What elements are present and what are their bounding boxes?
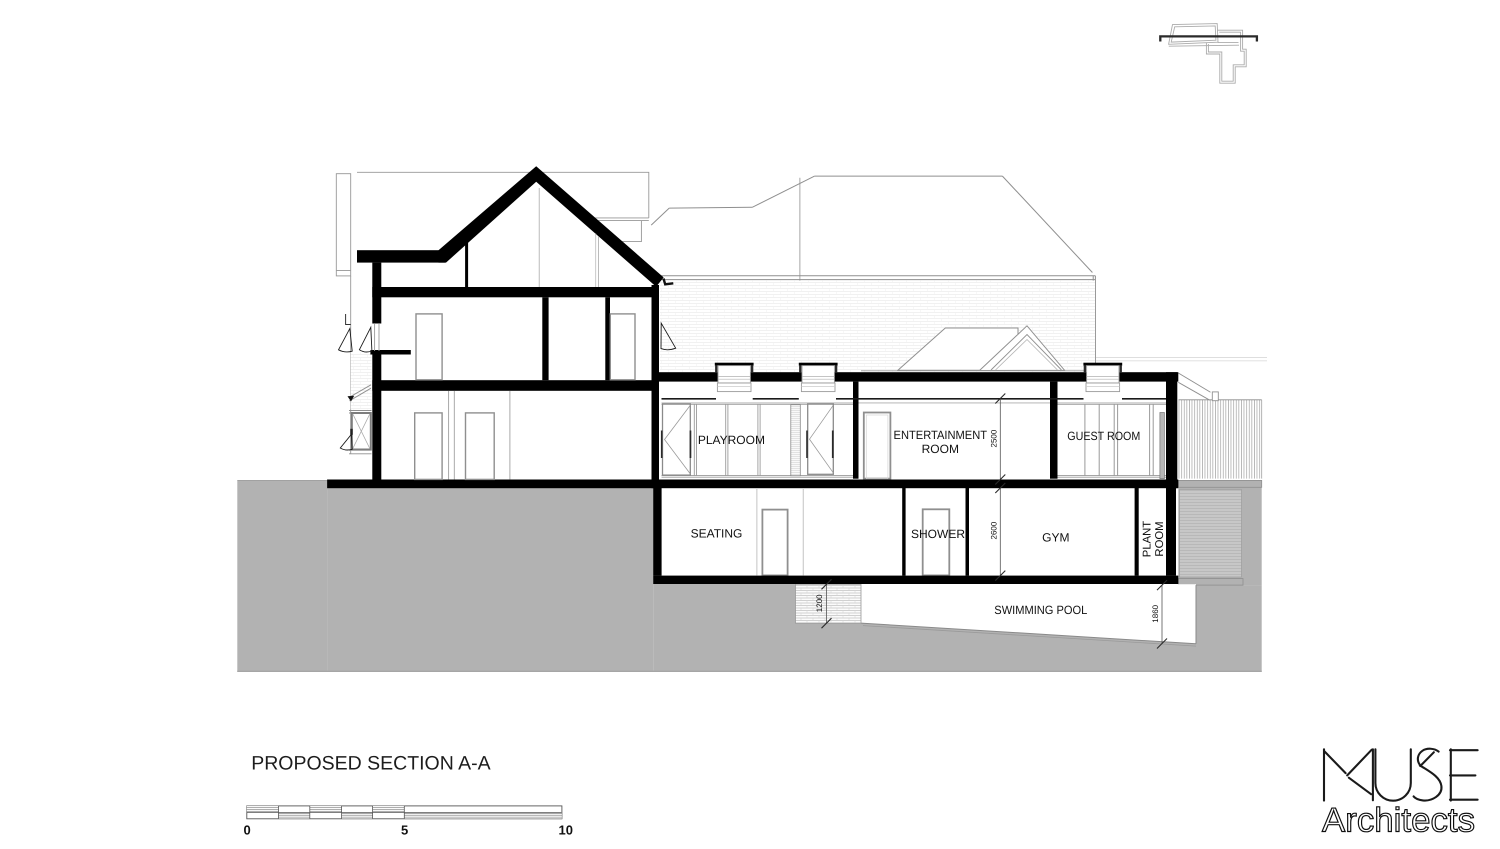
svg-text:2500: 2500 xyxy=(990,429,999,447)
svg-text:PLANT: PLANT xyxy=(1141,521,1153,558)
svg-text:PLAYROOM: PLAYROOM xyxy=(698,433,765,447)
svg-text:ROOM: ROOM xyxy=(922,442,959,456)
svg-text:1200: 1200 xyxy=(815,594,824,612)
svg-text:1860: 1860 xyxy=(1151,604,1160,622)
svg-text:GYM: GYM xyxy=(1042,531,1069,545)
svg-text:2600: 2600 xyxy=(989,521,998,539)
svg-text:10: 10 xyxy=(559,823,573,838)
svg-text:ROOM: ROOM xyxy=(1154,521,1166,556)
svg-text:PROPOSED SECTION A-A: PROPOSED SECTION A-A xyxy=(251,753,490,775)
svg-text:5: 5 xyxy=(401,823,408,838)
svg-text:SHOWER: SHOWER xyxy=(911,527,965,541)
svg-text:SWIMMING POOL: SWIMMING POOL xyxy=(994,603,1087,617)
svg-text:ENTERTAINMENT: ENTERTAINMENT xyxy=(894,428,988,442)
svg-text:0: 0 xyxy=(244,823,251,838)
svg-text:GUEST ROOM: GUEST ROOM xyxy=(1067,429,1140,443)
svg-text:SEATING: SEATING xyxy=(691,527,743,541)
svg-text:Architects: Architects xyxy=(1322,802,1475,840)
